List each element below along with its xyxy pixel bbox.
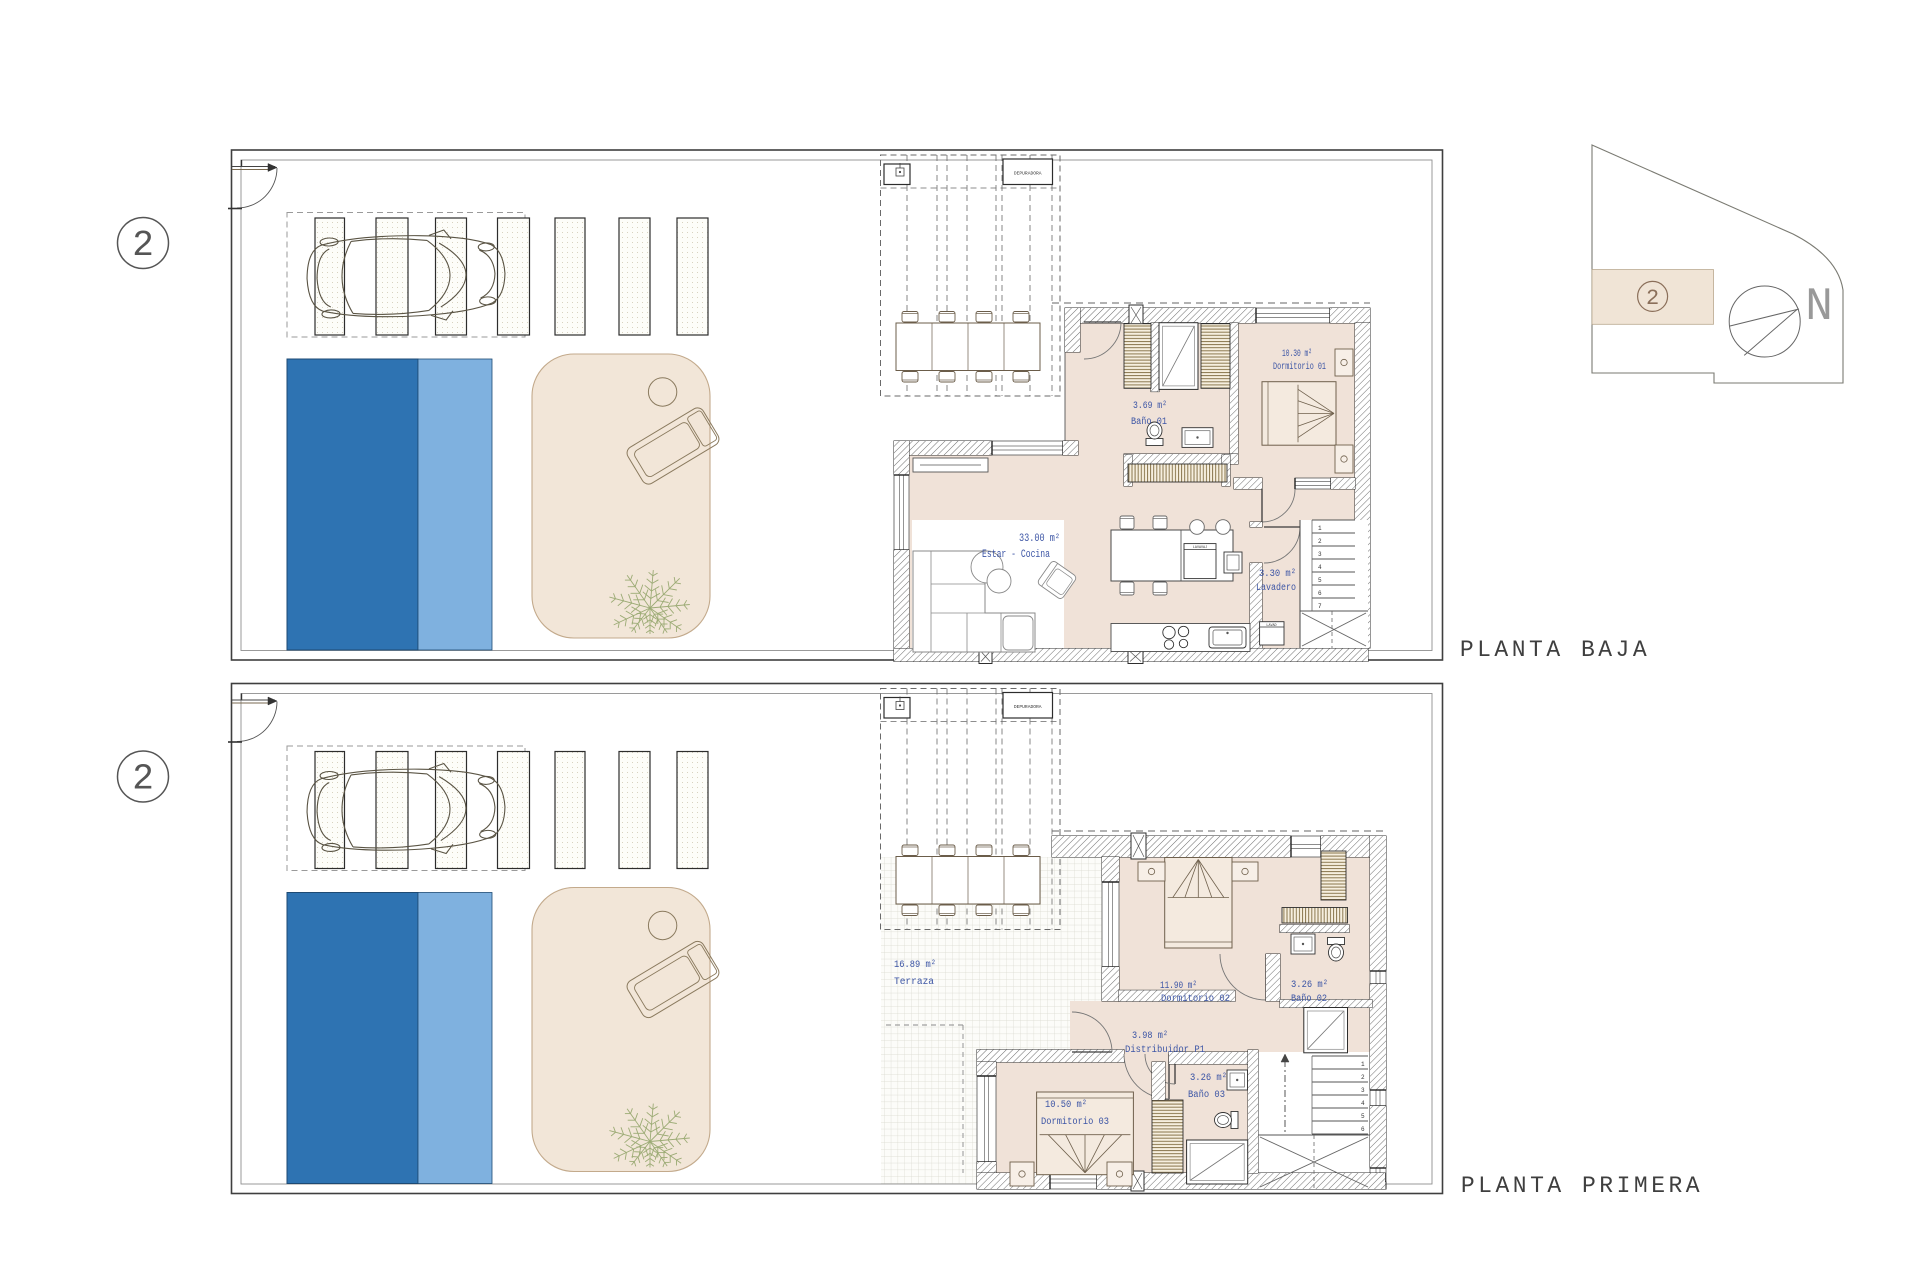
- svg-text:3: 3: [1318, 551, 1322, 558]
- svg-text:16.89 m²: 16.89 m²: [894, 960, 936, 971]
- svg-text:11.90 m²: 11.90 m²: [1160, 981, 1197, 992]
- svg-text:1: 1: [1361, 1061, 1365, 1068]
- svg-text:LAVAD: LAVAD: [1266, 624, 1276, 628]
- svg-text:5: 5: [1361, 1113, 1365, 1120]
- svg-text:3.26 m²: 3.26 m²: [1190, 1073, 1227, 1084]
- svg-text:3.26 m²: 3.26 m²: [1291, 980, 1328, 991]
- svg-text:PLANTA BAJA: PLANTA BAJA: [1460, 637, 1650, 663]
- svg-text:LAVAVAJ: LAVAVAJ: [1193, 546, 1207, 550]
- svg-text:Baño 03: Baño 03: [1188, 1089, 1225, 1101]
- svg-text:DEPURADORA: DEPURADORA: [1014, 171, 1042, 177]
- svg-text:6: 6: [1318, 590, 1322, 597]
- svg-text:Lavadero: Lavadero: [1256, 582, 1296, 594]
- svg-text:2: 2: [132, 225, 154, 266]
- svg-text:Terraza: Terraza: [894, 977, 934, 988]
- svg-text:Dormitorio 01: Dormitorio 01: [1273, 361, 1326, 373]
- svg-text:Dormitorio 02: Dormitorio 02: [1161, 993, 1230, 1005]
- svg-text:Baño 01: Baño 01: [1131, 416, 1167, 428]
- svg-text:6: 6: [1361, 1126, 1365, 1133]
- svg-text:1: 1: [1318, 525, 1322, 532]
- svg-text:Distribuidor P1: Distribuidor P1: [1125, 1044, 1205, 1056]
- svg-text:Estar - Cocina: Estar - Cocina: [982, 549, 1050, 561]
- svg-text:4: 4: [1361, 1100, 1365, 1107]
- svg-text:2: 2: [1318, 538, 1322, 545]
- svg-text:3: 3: [1361, 1087, 1365, 1094]
- svg-text:Baño 02: Baño 02: [1291, 993, 1327, 1005]
- svg-text:2: 2: [132, 759, 154, 800]
- svg-text:7: 7: [1318, 603, 1322, 610]
- svg-text:2: 2: [1646, 286, 1659, 311]
- svg-text:Dormitorio 03: Dormitorio 03: [1041, 1116, 1109, 1128]
- svg-text:3.30 m²: 3.30 m²: [1259, 569, 1296, 580]
- svg-text:5: 5: [1318, 577, 1322, 584]
- svg-text:3.98 m²: 3.98 m²: [1132, 1031, 1168, 1042]
- svg-text:3.69 m²: 3.69 m²: [1133, 401, 1167, 412]
- svg-text:2: 2: [1361, 1074, 1365, 1081]
- svg-text:DEPURADORA: DEPURADORA: [1014, 704, 1042, 710]
- svg-text:10.30 m²: 10.30 m²: [1282, 349, 1312, 360]
- svg-text:4: 4: [1318, 564, 1322, 571]
- svg-text:33.00 m²: 33.00 m²: [1019, 533, 1060, 545]
- svg-text:PLANTA PRIMERA: PLANTA PRIMERA: [1461, 1173, 1703, 1199]
- svg-text:10.50 m²: 10.50 m²: [1045, 1100, 1087, 1111]
- svg-text:N: N: [1805, 281, 1833, 333]
